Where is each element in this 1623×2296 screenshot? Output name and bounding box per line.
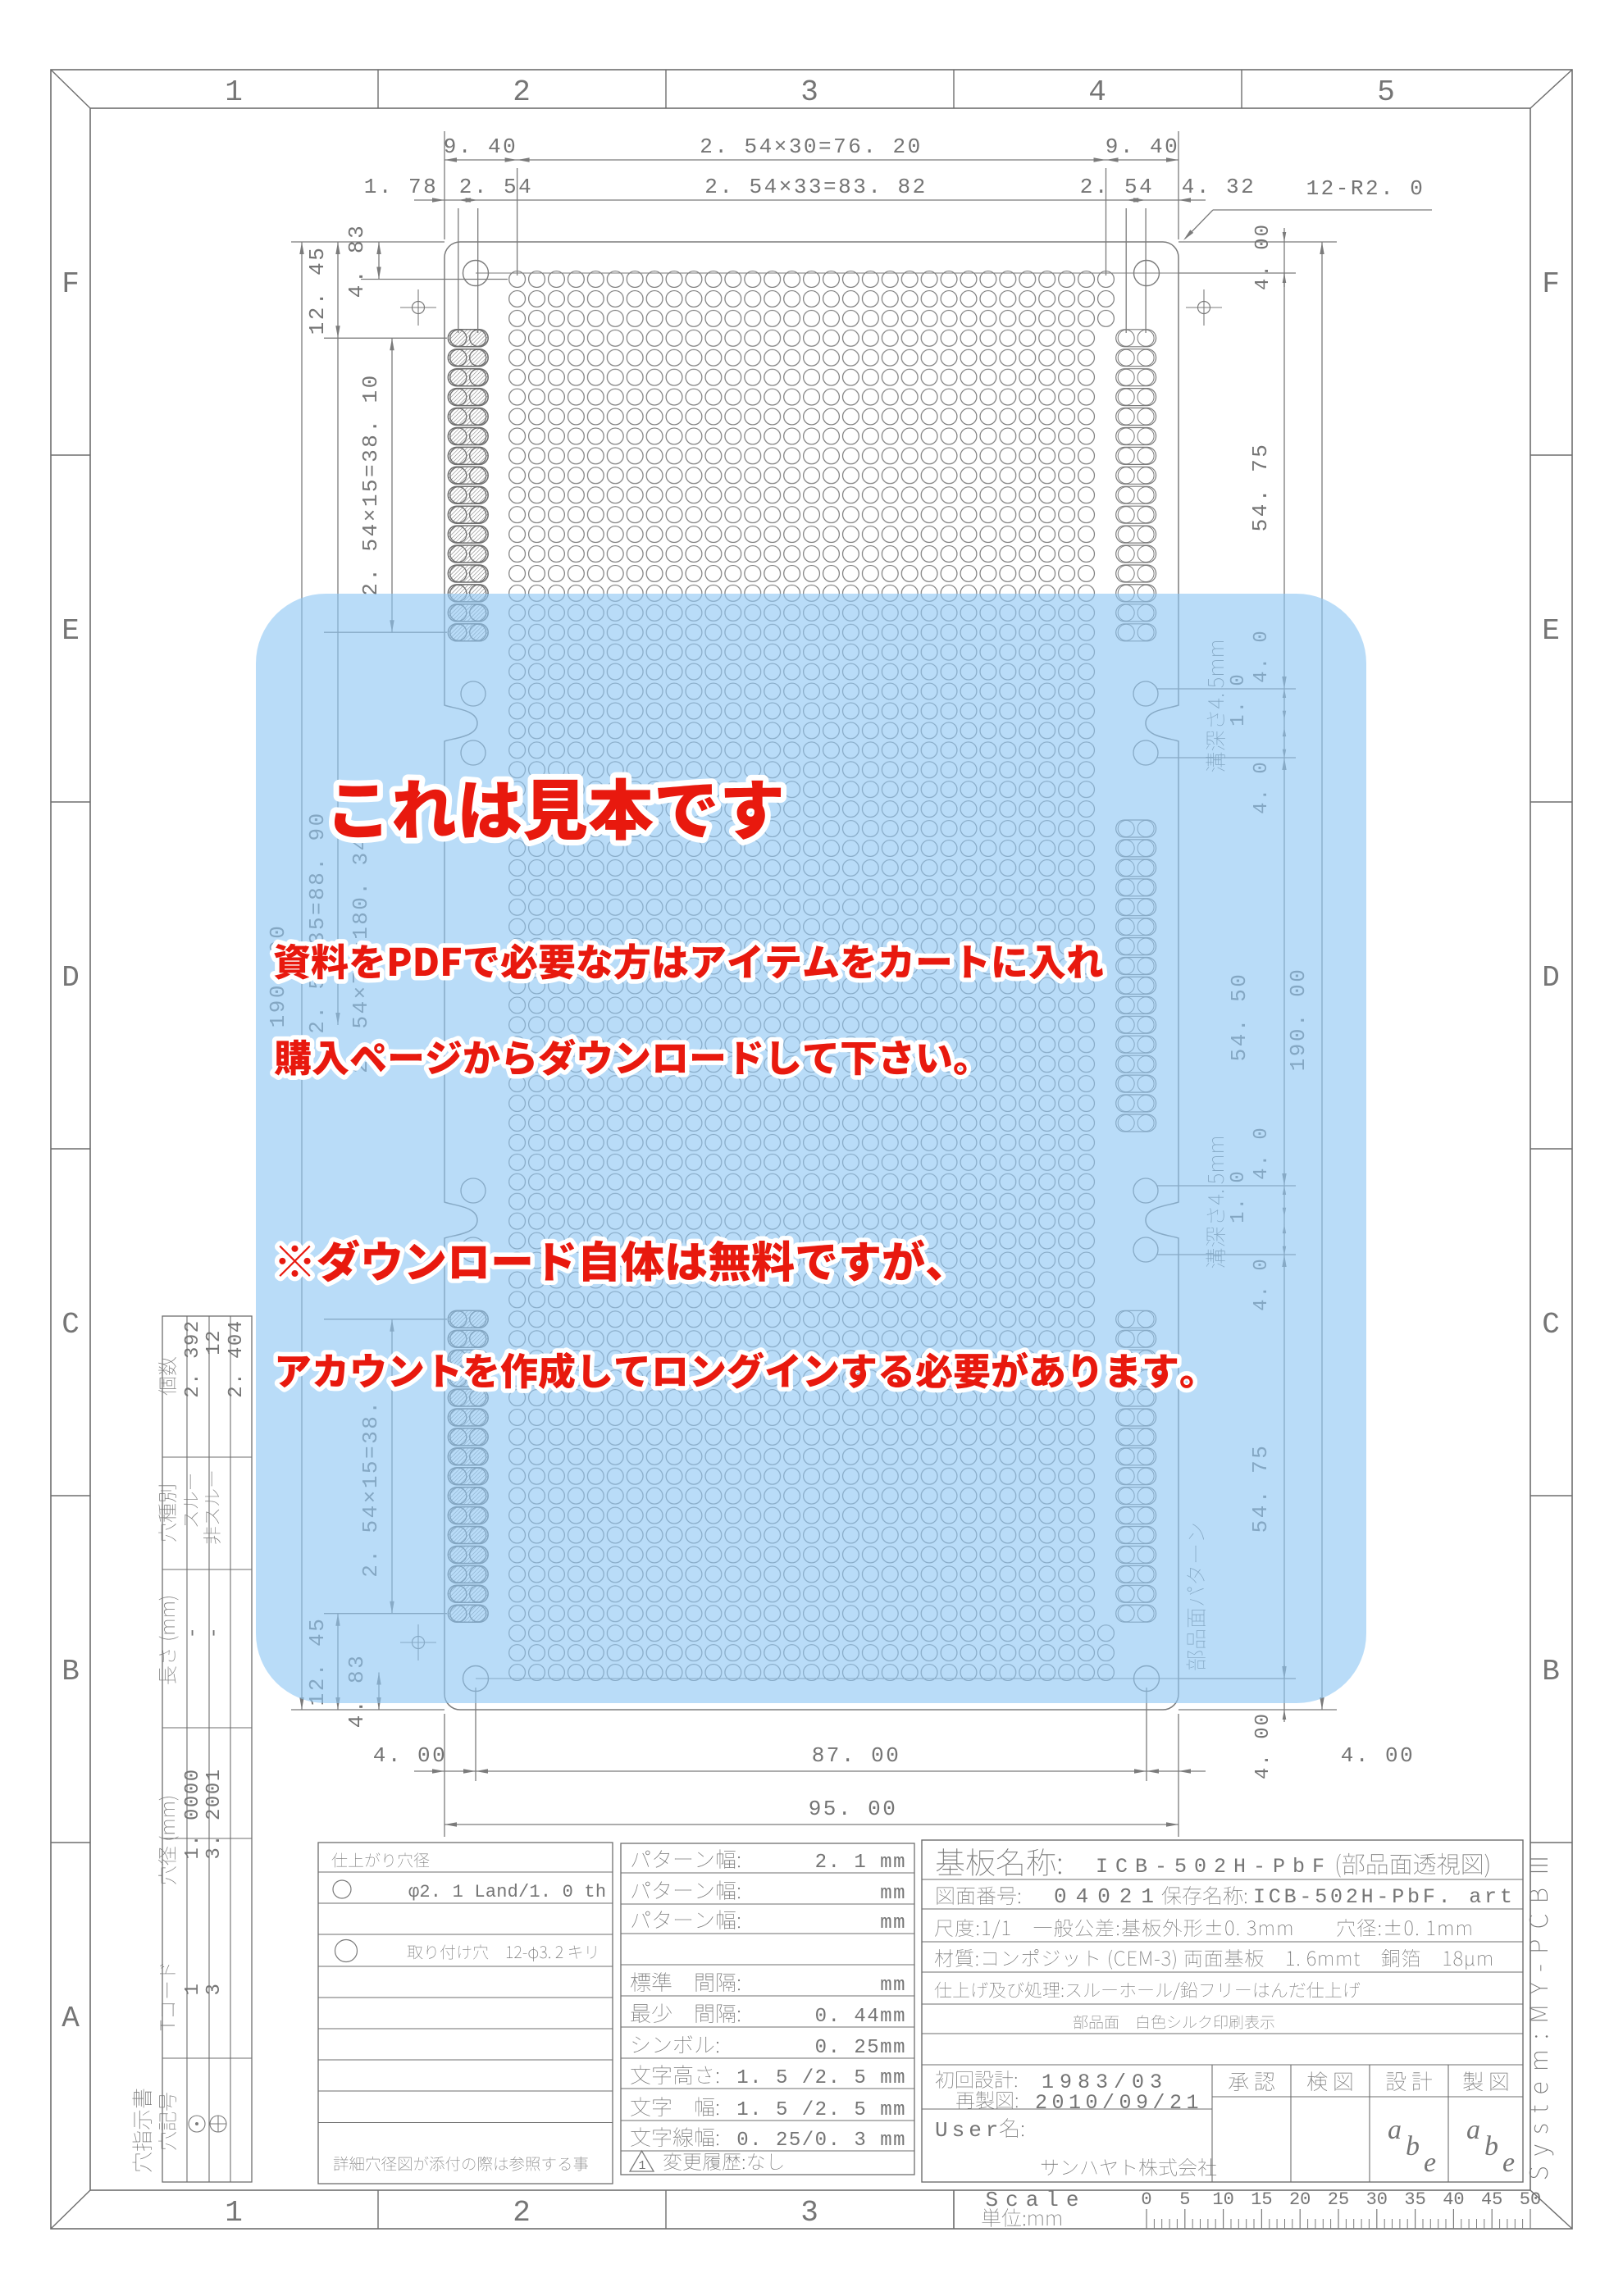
svg-text:b: b: [1484, 2131, 1498, 2162]
svg-text:E: E: [62, 614, 80, 648]
svg-text:30: 30: [1366, 2189, 1388, 2210]
svg-text:-: -: [203, 1625, 226, 1639]
svg-text:2. 54: 2. 54: [1080, 175, 1155, 199]
svg-text:F: F: [62, 267, 80, 301]
svg-text:0: 0: [1141, 2189, 1151, 2210]
svg-text:a: a: [1388, 2115, 1402, 2145]
svg-text:3: 3: [800, 2196, 818, 2230]
svg-text:1: 1: [638, 2159, 645, 2173]
svg-text:mm: mm: [880, 1883, 906, 1905]
svg-text:mm: mm: [880, 1975, 906, 1997]
svg-text:5: 5: [1377, 75, 1395, 109]
svg-text:87. 00: 87. 00: [812, 1743, 901, 1768]
svg-text:2. 54: 2. 54: [459, 175, 534, 199]
svg-text:A: A: [62, 2002, 80, 2035]
svg-text:4. 00: 4. 00: [1252, 223, 1274, 290]
svg-text:4. 32: 4. 32: [1182, 175, 1256, 199]
svg-text:15: 15: [1251, 2189, 1272, 2210]
svg-text:54. 75: 54. 75: [1248, 443, 1273, 532]
svg-text:1. 5 /2. 5 mm: 1. 5 /2. 5 mm: [736, 2067, 906, 2089]
svg-text:2. 54×30=76. 20: 2. 54×30=76. 20: [700, 134, 923, 159]
svg-text:User: User: [935, 2118, 1002, 2143]
svg-text:12: 12: [203, 1329, 226, 1355]
svg-text:4. 00: 4. 00: [1252, 1712, 1274, 1779]
svg-text:2. 54×33=83. 82: 2. 54×33=83. 82: [704, 175, 928, 199]
svg-text:Scale: Scale: [985, 2188, 1086, 2212]
svg-text:D: D: [1542, 961, 1560, 995]
svg-text:3: 3: [800, 75, 818, 109]
svg-text:95. 00: 95. 00: [809, 1797, 898, 1821]
svg-text:D: D: [62, 961, 80, 995]
svg-text:4. 00: 4. 00: [373, 1743, 448, 1768]
svg-text:0. 44mm: 0. 44mm: [815, 2006, 906, 2028]
svg-text:40: 40: [1443, 2189, 1464, 2210]
svg-text:1: 1: [225, 75, 243, 109]
svg-text:1. 0000: 1. 0000: [182, 1768, 204, 1859]
svg-text:12-R2. 0: 12-R2. 0: [1306, 176, 1425, 201]
svg-text:9. 40: 9. 40: [1106, 134, 1180, 159]
svg-text:C: C: [62, 1308, 80, 1342]
svg-text:4: 4: [1088, 75, 1106, 109]
svg-text:2. 392: 2. 392: [182, 1319, 204, 1397]
svg-text:1. 78: 1. 78: [364, 175, 439, 199]
svg-text:25: 25: [1328, 2189, 1349, 2210]
svg-text:10: 10: [1212, 2189, 1233, 2210]
svg-text:b: b: [1406, 2131, 1420, 2162]
svg-text:F: F: [1542, 267, 1560, 301]
svg-text:1: 1: [182, 1982, 204, 1996]
svg-text:B: B: [1542, 1655, 1560, 1688]
svg-text:2. 1 mm: 2. 1 mm: [815, 1852, 906, 1874]
svg-text:φ2. 1 Land/1. 0 th: φ2. 1 Land/1. 0 th: [408, 1882, 606, 1902]
svg-text:3: 3: [203, 1982, 226, 1996]
svg-text:B: B: [62, 1655, 80, 1688]
svg-text:2: 2: [513, 75, 531, 109]
svg-text:e: e: [1424, 2148, 1436, 2178]
svg-text:0. 25mm: 0. 25mm: [815, 2037, 906, 2059]
svg-text:0. 25/0. 3 mm: 0. 25/0. 3 mm: [736, 2130, 906, 2152]
svg-text:12. 45: 12. 45: [305, 246, 330, 335]
svg-text:2. 404: 2. 404: [226, 1319, 248, 1397]
svg-text:50: 50: [1520, 2189, 1541, 2210]
svg-text:35: 35: [1404, 2189, 1425, 2210]
svg-text:2. 54×15=38. 10: 2. 54×15=38. 10: [358, 373, 383, 596]
svg-text:-: -: [182, 1625, 204, 1639]
svg-text:1: 1: [225, 2196, 243, 2230]
svg-text:mm: mm: [880, 1912, 906, 1934]
svg-text:E: E: [1542, 614, 1560, 648]
svg-text:ICB-502H-PbF. art: ICB-502H-PbF. art: [1253, 1885, 1516, 1909]
svg-text:4. 83: 4. 83: [344, 224, 369, 298]
svg-text:9. 40: 9. 40: [444, 134, 518, 159]
svg-text:20: 20: [1289, 2189, 1311, 2210]
svg-text:a: a: [1466, 2115, 1480, 2145]
svg-text:45: 45: [1481, 2189, 1502, 2210]
svg-text:2: 2: [513, 2196, 531, 2230]
svg-text:ICB-502H-PbF: ICB-502H-PbF: [1096, 1855, 1332, 1879]
svg-text:e: e: [1502, 2148, 1515, 2178]
svg-text:4. 00: 4. 00: [1341, 1743, 1416, 1768]
svg-text:2010/09/21: 2010/09/21: [1035, 2091, 1203, 2115]
svg-text:5: 5: [1179, 2189, 1190, 2210]
svg-text:1. 5 /2. 5 mm: 1. 5 /2. 5 mm: [736, 2099, 906, 2121]
svg-text:3. 2001: 3. 2001: [203, 1768, 226, 1859]
svg-text:04021: 04021: [1054, 1884, 1163, 1909]
svg-text:C: C: [1542, 1308, 1560, 1342]
